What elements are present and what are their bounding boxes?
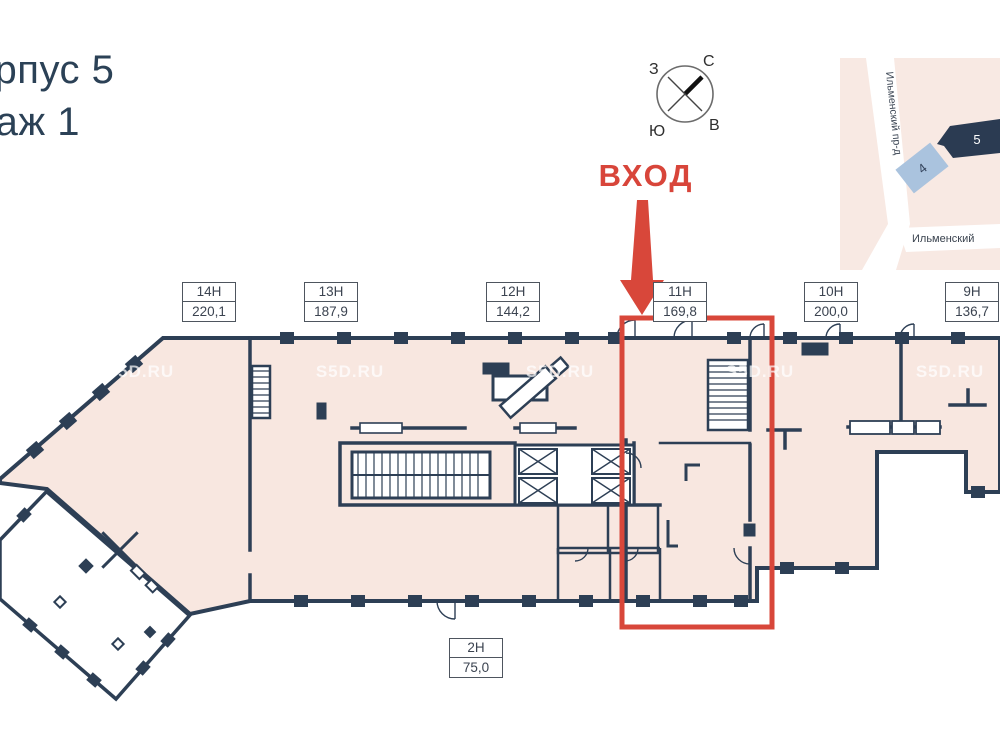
unit-label-11n[interactable]: 11Н 169,8 <box>653 282 707 322</box>
unit-id: 12Н <box>487 283 539 302</box>
unit-area: 187,9 <box>305 302 357 321</box>
elevators <box>515 445 634 505</box>
unit-area: 169,8 <box>654 302 706 321</box>
unit-label-13n[interactable]: 13Н 187,9 <box>304 282 358 322</box>
unit-id: 11Н <box>654 283 706 302</box>
unit-label-10n[interactable]: 10Н 200,0 <box>804 282 858 322</box>
unit-label-9n[interactable]: 9Н 136,7 <box>945 282 999 322</box>
unit-id: 10Н <box>805 283 857 302</box>
unit-label-2n[interactable]: 2Н 75,0 <box>449 638 503 678</box>
unit-area: 136,7 <box>946 302 998 321</box>
street-horizontal-label: Ильменский <box>912 233 974 245</box>
unit-area: 144,2 <box>487 302 539 321</box>
building-title: Корпус 5 <box>0 44 114 96</box>
compass-south: Ю <box>649 123 665 140</box>
unit-id: 2Н <box>450 639 502 658</box>
staircase-left <box>252 366 270 418</box>
staircase-11n <box>708 360 748 430</box>
unit-area: 75,0 <box>450 658 502 677</box>
floor-title: Этаж 1 <box>0 96 114 148</box>
unit-label-14n[interactable]: 14Н 220,1 <box>182 282 236 322</box>
unit-id: 9Н <box>946 283 998 302</box>
staircase-main <box>352 452 490 498</box>
unit-label-12n[interactable]: 12Н 144,2 <box>486 282 540 322</box>
compass-rose: С З Ю В <box>641 46 733 142</box>
compass-east: В <box>709 117 720 134</box>
unit-id: 13Н <box>305 283 357 302</box>
compass-west: З <box>649 61 659 78</box>
svg-text:5: 5 <box>973 132 980 147</box>
page-title: Корпус 5 Этаж 1 <box>0 44 114 148</box>
unit-area: 220,1 <box>183 302 235 321</box>
compass-north: С <box>703 53 715 70</box>
mini-map[interactable]: 4 5 Ильменский пр-д Ильменский <box>840 58 1000 270</box>
entrance-label: ВХОД <box>578 158 714 194</box>
unit-area: 200,0 <box>805 302 857 321</box>
unit-id: 14Н <box>183 283 235 302</box>
